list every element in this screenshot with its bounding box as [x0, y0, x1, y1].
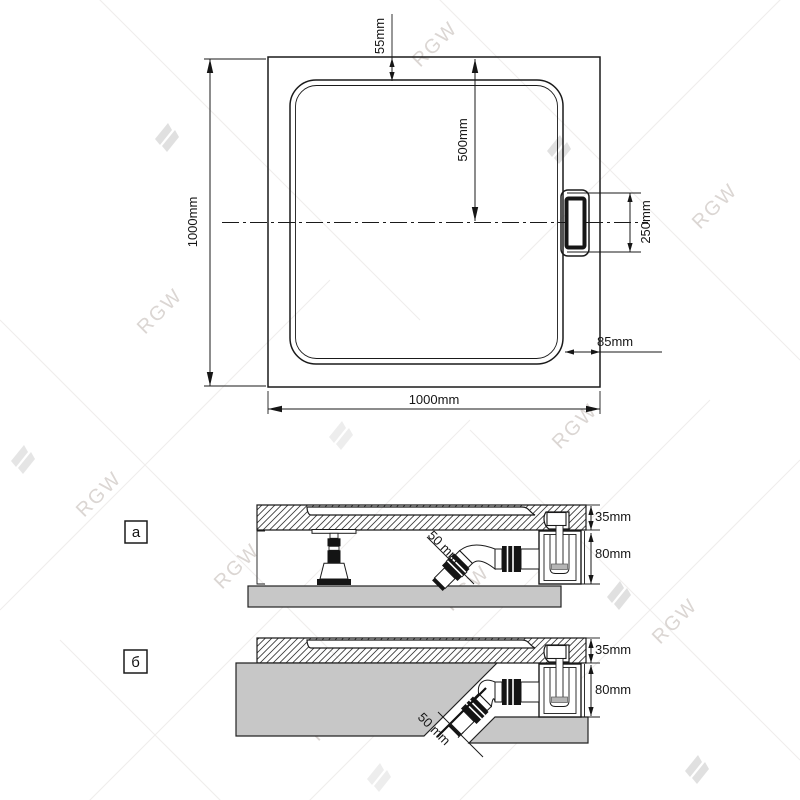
- brand-logo-icon: [155, 123, 179, 152]
- drain-stem-foot-b: [552, 697, 568, 703]
- dim-side-inset-label: 85mm: [597, 334, 633, 349]
- watermark-text: RGW: [133, 284, 187, 338]
- dim-top-inset-label: 55mm: [372, 18, 387, 54]
- dim-drain-cover-label: 250mm: [638, 200, 653, 243]
- brand-logo-icon: [685, 755, 709, 784]
- drain-stem: [556, 526, 563, 566]
- watermark-text: RGW: [72, 467, 126, 521]
- tray-outer-edge: [268, 57, 600, 387]
- drain-flange: [547, 513, 566, 526]
- dim-pipe-a-label: 50 mm: [425, 527, 464, 566]
- dim-edge-b-label: 35mm: [595, 642, 631, 657]
- dim-overall-width-label: 1000mm: [409, 392, 460, 407]
- brand-logo-icon: [547, 135, 571, 164]
- brand-logo-icon: [607, 581, 631, 610]
- drain-cover-inner: [567, 199, 585, 248]
- drain-flange-b: [547, 646, 566, 659]
- brand-logo-icon: [329, 421, 353, 450]
- watermark-text: RGW: [408, 17, 462, 71]
- tray-basin-inner-rim: [296, 86, 558, 359]
- support-leg: [312, 530, 356, 586]
- floor-slab: [248, 586, 561, 607]
- brand-logo-icon: [11, 445, 35, 474]
- watermark-text: RGW: [210, 539, 264, 593]
- shower-tray-technical-drawing: RGW RGW RGW RGW RGW RGW RGW RGW RGW: [0, 0, 800, 800]
- watermark-text: RGW: [548, 399, 602, 453]
- section-a-label: а: [132, 524, 141, 541]
- pipe-ribbed-coupling: [495, 546, 521, 572]
- embedded-floor-right: [469, 717, 588, 743]
- section-b: 50 mm 35mm 80mm б: [124, 638, 631, 757]
- drain-stem-b: [556, 659, 563, 699]
- dim-base-a-label: 80mm: [595, 546, 631, 561]
- pipe-ribbed-coupling-b: [495, 679, 521, 705]
- watermark-text: RGW: [648, 594, 702, 648]
- dim-overall-height-label: 1000mm: [185, 197, 200, 248]
- tray-basin-outer-rim: [290, 80, 563, 364]
- tray-cross-section: [257, 505, 586, 530]
- tray-cross-section-b: [257, 638, 586, 663]
- pipe-outlet-b: [521, 682, 539, 702]
- section-b-label: б: [131, 654, 140, 671]
- brand-logo-icon: [367, 763, 391, 792]
- drain-stem-foot: [552, 564, 568, 570]
- dim-base-b-label: 80mm: [595, 682, 631, 697]
- pipe-outlet: [521, 549, 539, 569]
- dim-edge-a-label: 35mm: [595, 509, 631, 524]
- watermark-text: RGW: [688, 179, 742, 233]
- dim-center-offset-label: 500mm: [455, 118, 470, 161]
- watermark-brand-texts: RGW RGW RGW RGW RGW RGW RGW RGW RGW: [72, 17, 742, 745]
